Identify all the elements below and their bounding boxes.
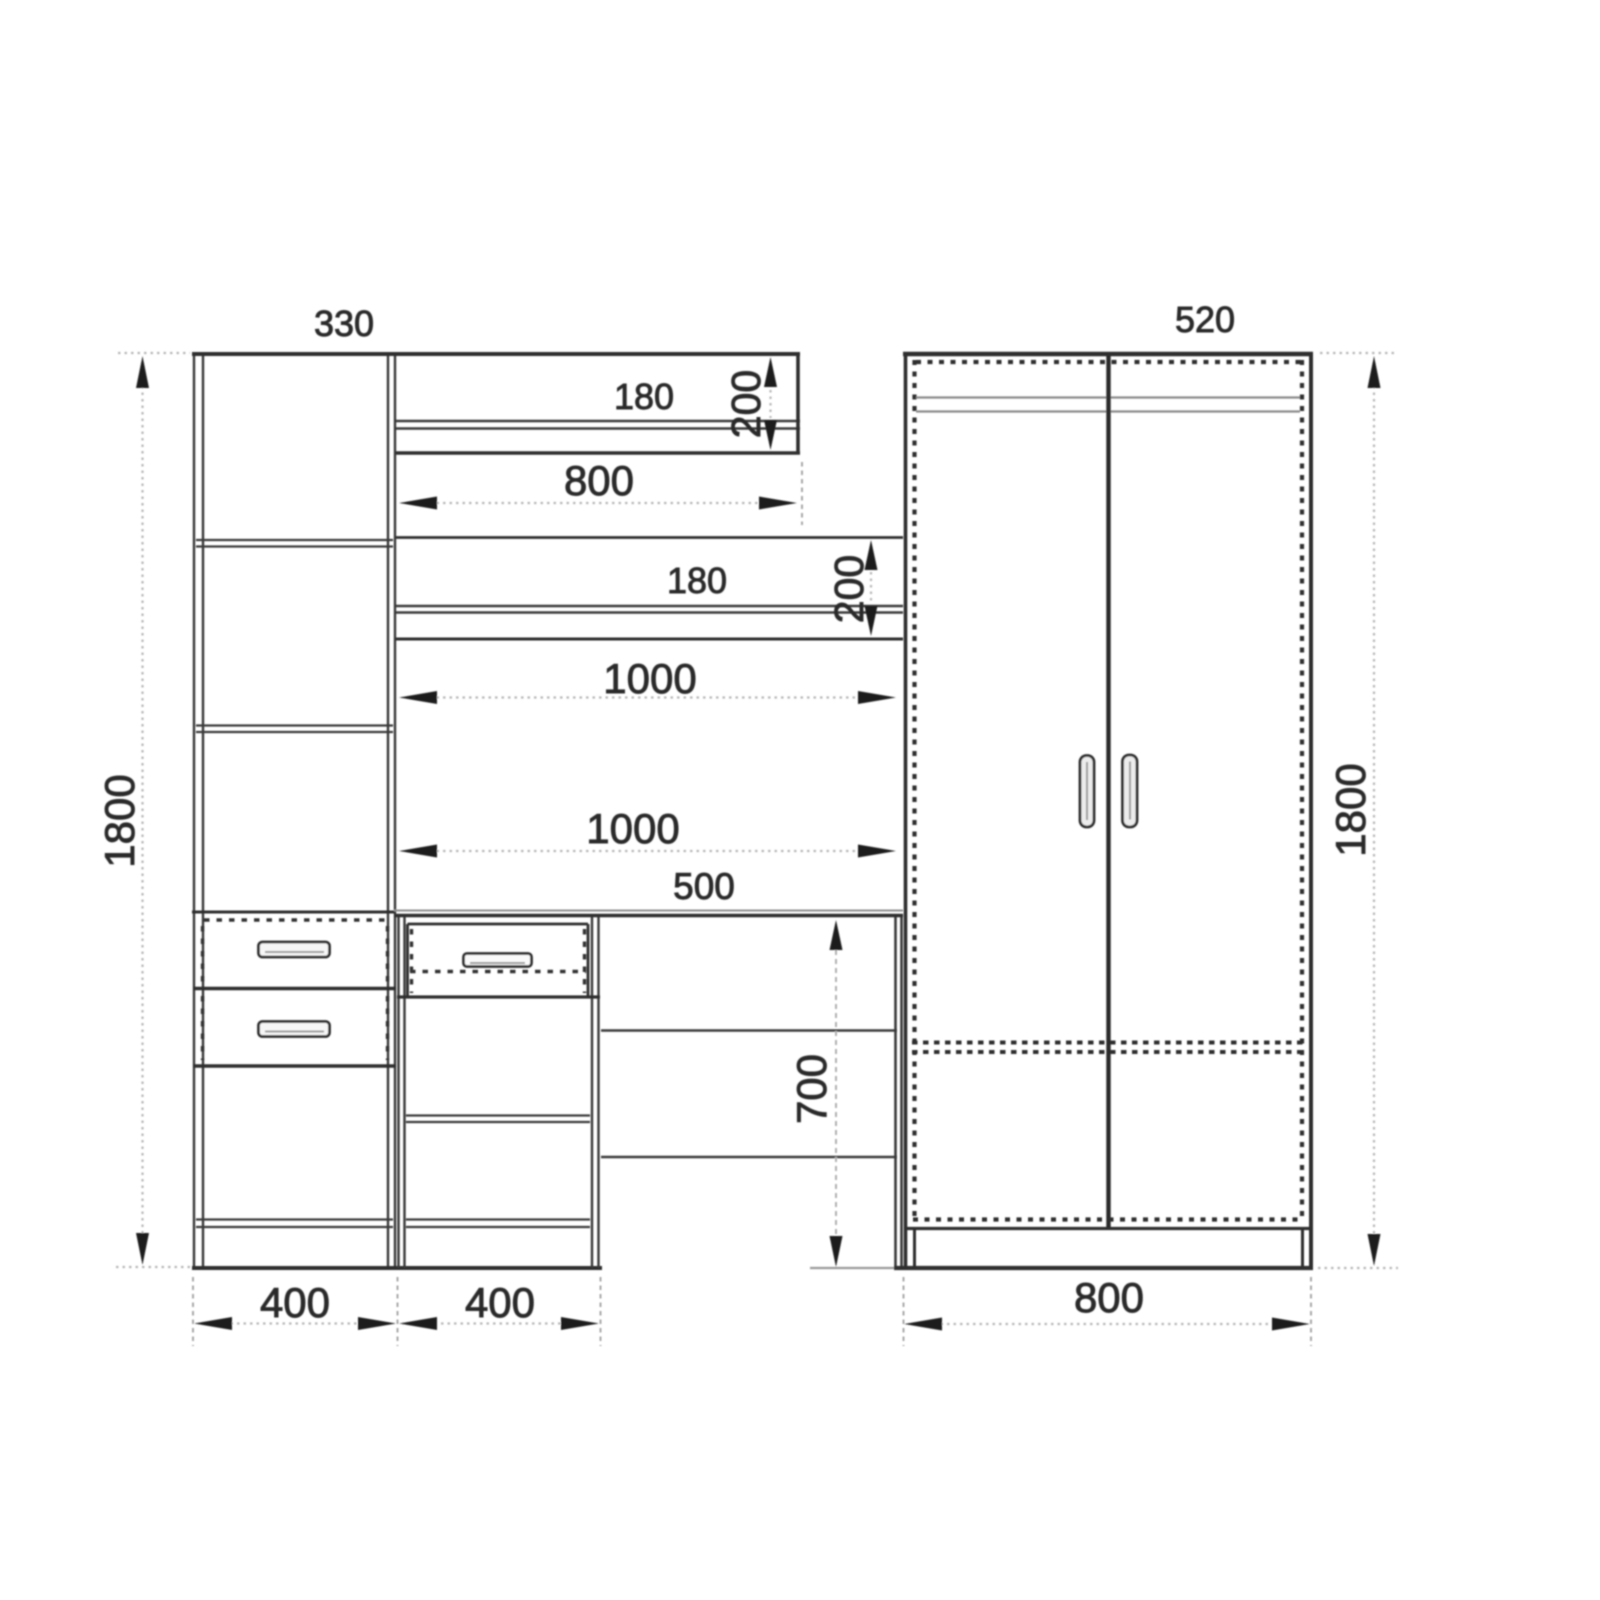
svg-text:700: 700 — [788, 1054, 835, 1124]
svg-text:1800: 1800 — [1327, 763, 1374, 856]
svg-text:1000: 1000 — [603, 655, 696, 702]
svg-text:1000: 1000 — [586, 805, 679, 852]
svg-text:520: 520 — [1175, 299, 1235, 340]
svg-text:200: 200 — [723, 370, 769, 438]
svg-text:180: 180 — [667, 560, 727, 601]
svg-text:1800: 1800 — [96, 774, 143, 867]
svg-text:180: 180 — [614, 376, 674, 417]
svg-text:500: 500 — [673, 866, 735, 907]
svg-text:400: 400 — [260, 1279, 330, 1326]
svg-text:800: 800 — [1074, 1274, 1144, 1321]
svg-text:200: 200 — [826, 555, 872, 623]
svg-text:330: 330 — [314, 303, 374, 344]
svg-text:800: 800 — [564, 457, 634, 504]
svg-text:400: 400 — [465, 1279, 535, 1326]
